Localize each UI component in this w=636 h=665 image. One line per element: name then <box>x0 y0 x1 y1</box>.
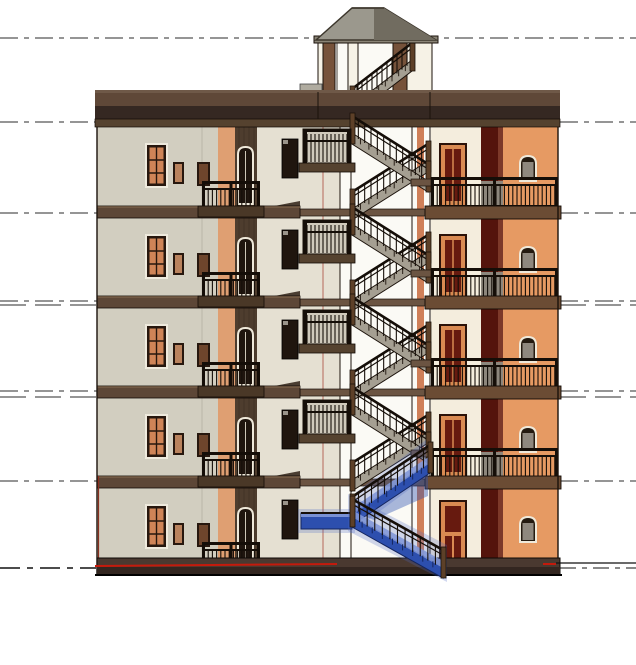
door-panel <box>454 536 461 559</box>
landing-post <box>303 400 307 434</box>
landing-slab-edge <box>299 434 355 443</box>
selected-stair-landing[interactable] <box>298 509 355 533</box>
balcony-slab <box>198 386 264 397</box>
landing-post <box>303 220 307 254</box>
elevation-drawing[interactable] <box>0 0 636 665</box>
railing-post <box>493 448 496 478</box>
newel-post <box>350 460 355 491</box>
landing-post <box>347 220 351 254</box>
balcony-slab-band <box>425 476 561 489</box>
mid-landing-slab <box>411 179 431 186</box>
landing-rail <box>303 400 351 403</box>
window-glint <box>283 411 288 415</box>
window-dark[interactable] <box>282 139 298 178</box>
railing-post <box>493 358 496 388</box>
balcony-slab <box>198 296 264 307</box>
cornice-ledge <box>95 119 560 127</box>
window-glass <box>523 433 534 450</box>
balcony-slab-band <box>425 206 561 219</box>
window-glint <box>283 231 288 235</box>
balcony-slab-band <box>425 386 561 399</box>
cornice-upper <box>95 93 560 107</box>
window-glass <box>175 255 182 273</box>
railing-post <box>431 177 434 207</box>
window-glint <box>283 140 288 144</box>
newel-post <box>441 547 446 578</box>
hip-roof-shaded <box>374 8 436 40</box>
landing-post <box>303 310 307 344</box>
window-dark[interactable] <box>282 500 298 539</box>
base-plinth-shadow <box>97 567 560 575</box>
window-glint <box>283 501 288 505</box>
roof-cornice <box>95 84 560 127</box>
landing-rail <box>303 310 351 313</box>
newel-post <box>426 252 431 283</box>
window-glass <box>523 162 534 179</box>
newel-post <box>428 442 433 473</box>
mid-landing-slab <box>411 270 431 277</box>
window-glass <box>175 525 182 543</box>
stair-landing[interactable] <box>303 310 351 344</box>
newel-post <box>426 342 431 373</box>
window-glass <box>523 253 534 270</box>
landing-post <box>303 129 307 163</box>
window-glint <box>283 321 288 325</box>
base-ground <box>0 558 636 575</box>
cornice-lower <box>95 106 560 119</box>
mid-landing-slab <box>411 360 431 367</box>
model-viewport[interactable] <box>0 0 636 665</box>
landing-slab-edge <box>299 344 355 353</box>
newel-post <box>426 161 431 192</box>
window-glass <box>175 164 182 182</box>
landing-slab-edge <box>299 254 355 263</box>
landing-post <box>347 129 351 163</box>
newel-post <box>350 496 355 527</box>
window-glass <box>523 343 534 360</box>
railing-post <box>493 268 496 298</box>
right-facade[interactable] <box>425 92 561 575</box>
landing-rail <box>303 129 351 132</box>
railing-post <box>493 177 496 207</box>
landing-slab-edge <box>299 163 355 172</box>
balcony-slab <box>198 476 264 487</box>
railing-post <box>431 268 434 298</box>
stair-landing[interactable] <box>303 220 351 254</box>
landing-rail <box>303 220 351 223</box>
window-dark[interactable] <box>282 320 298 359</box>
landing-post <box>347 310 351 344</box>
railing-post <box>431 358 434 388</box>
window-glass <box>523 523 534 540</box>
window-dark[interactable] <box>282 230 298 269</box>
window-glass <box>175 435 182 453</box>
balcony-slab <box>198 206 264 217</box>
window-dark[interactable] <box>282 410 298 449</box>
tower-post <box>323 42 335 95</box>
window-glass <box>175 345 182 363</box>
newel-post <box>410 40 415 71</box>
door-panel <box>445 506 461 532</box>
stair-landing[interactable] <box>303 400 351 434</box>
landing-post <box>347 400 351 434</box>
stair-landing[interactable] <box>303 129 351 163</box>
balcony-slab-band <box>425 296 561 309</box>
